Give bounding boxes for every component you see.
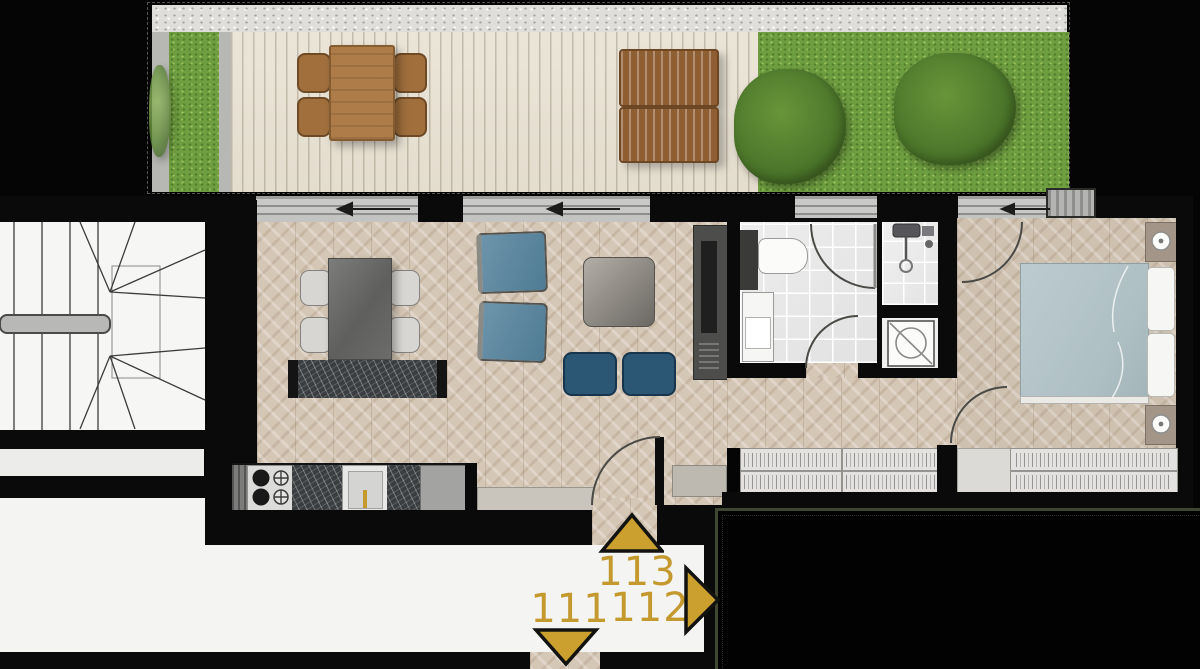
door-arcs [592,222,1022,505]
shower-head-icon [893,224,934,272]
sliding-door-arrows [338,203,1050,215]
entry-door-arc [592,437,660,505]
cooktop-burners [253,470,289,506]
unit-marker-112[interactable]: 112 [608,560,723,638]
bedside-lamp-icon [1152,232,1170,433]
bedroom-terrace-door-arc [962,222,1022,282]
arrow-down-icon [530,627,600,667]
arrow-up-icon [594,510,664,554]
arrow-right-icon [682,564,722,636]
bathroom-door-arc [806,316,858,368]
bathroom-terrace-door-arc [811,224,875,288]
bed-fold-lines [1112,266,1128,398]
floor-plan: 113 111 112 [0,0,1200,669]
stair-handrail [0,315,110,333]
bedroom-door-arc [951,387,1007,443]
unit-label: 112 [608,588,692,628]
unit-marker-111[interactable]: 111 [525,585,615,667]
washing-machine-icon [888,321,934,366]
unit-label: 111 [530,589,610,629]
